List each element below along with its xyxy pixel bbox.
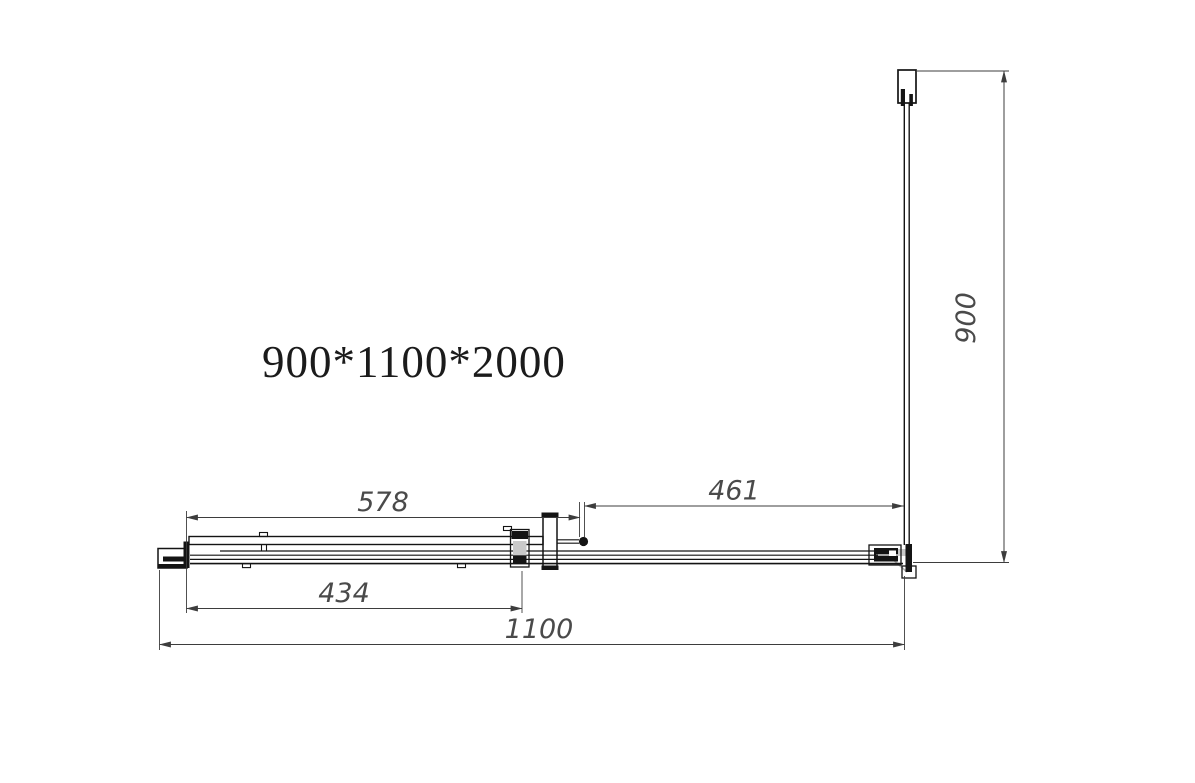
- dimension-door-panel-width: 578: [187, 487, 581, 518]
- dim-label-461: 461: [708, 476, 760, 507]
- left-wall-clamp-bar: [163, 557, 186, 562]
- dim-label-578: 578: [357, 487, 409, 518]
- door-assembly: [158, 513, 903, 571]
- corner-post: [906, 544, 913, 572]
- dimension-total-width: 1100: [160, 614, 905, 645]
- left-wall-profile-base: [158, 564, 187, 568]
- side-glass-panel: [898, 70, 916, 545]
- dimension-side-depth: 900: [951, 71, 1004, 563]
- corner-connector: [869, 544, 916, 578]
- technical-drawing-page: 900*1100*2000: [0, 0, 1195, 783]
- door-knob: [579, 537, 588, 546]
- roller-block-bottom: [513, 556, 527, 563]
- dim-label-900: 900: [951, 292, 982, 344]
- handle-cap-top: [542, 513, 559, 518]
- roller-block-top: [512, 531, 529, 539]
- top-wall-profile: [898, 70, 916, 103]
- door-top-rail: [189, 537, 543, 545]
- dimension-fixed-panel-width: 461: [585, 476, 904, 507]
- dim-label-434: 434: [318, 578, 370, 609]
- drawing-title: 900*1100*2000: [262, 337, 566, 387]
- roller-block-body: [513, 541, 527, 555]
- dim-label-1100: 1100: [505, 614, 574, 645]
- shower-enclosure-plan-drawing: 900*1100*2000: [0, 0, 1195, 783]
- dimension-door-opening-width: 434: [187, 578, 523, 609]
- handle-cap-bottom: [542, 566, 559, 571]
